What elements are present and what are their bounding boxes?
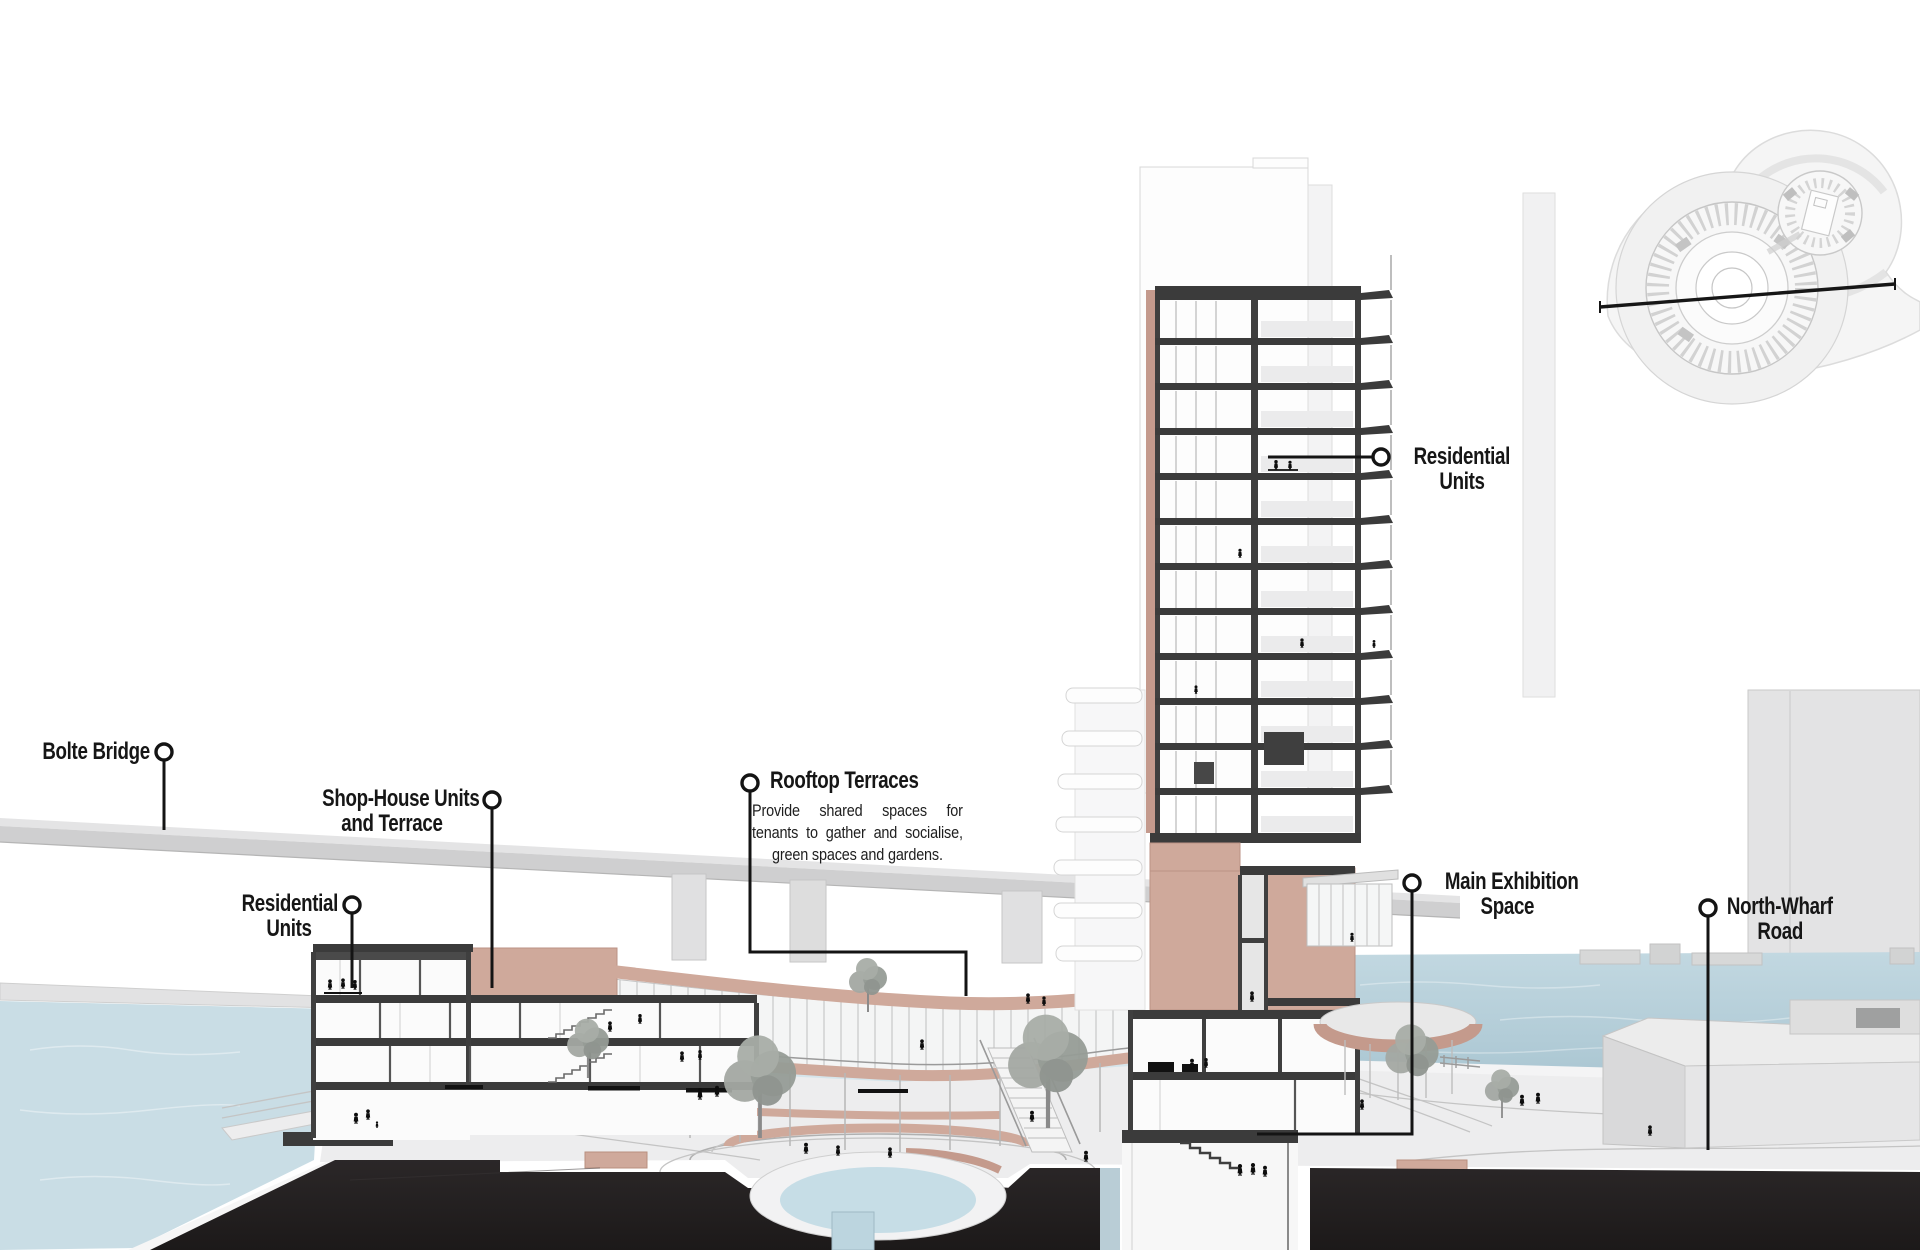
architectural-section-diagram: Bolte Bridge Shop-House Units and Terrac… [0, 0, 1920, 1250]
pool-channel [832, 1212, 874, 1250]
marker-rooftop-terraces [742, 775, 758, 791]
label-line1: North-Wharf [1727, 894, 1833, 919]
planter [585, 1152, 647, 1168]
roof-slab [313, 944, 473, 952]
label-residential-units-right: Residential Units [1396, 444, 1528, 494]
label-rooftop-terraces-title: Rooftop Terraces [770, 768, 990, 793]
exhibit-desk [1148, 1062, 1174, 1072]
label-text: Bolte Bridge [42, 739, 150, 764]
marker-main-exhibition [1404, 875, 1420, 891]
label-text: Rooftop Terraces [770, 768, 919, 793]
label-north-wharf-road: North-Wharf Road [1712, 894, 1848, 944]
label-line1: Residential [242, 891, 338, 916]
marker-residential-right [1373, 449, 1389, 465]
basement-exhibition [1122, 1130, 1298, 1250]
marker-shop-house [484, 792, 500, 808]
label-line2: Space [1480, 894, 1534, 919]
section-drawing [0, 0, 1920, 1250]
label-line1: Shop-House Units [322, 786, 479, 811]
water-channel [1100, 1168, 1120, 1250]
label-main-exhibition-space: Main Exhibition Space [1426, 869, 1588, 919]
label-residential-units-left: Residential Units [228, 891, 350, 941]
marker-bolte-bridge [156, 744, 172, 760]
label-bolte-bridge: Bolte Bridge [0, 739, 150, 764]
label-line2: and Terrace [341, 811, 442, 836]
dark-inset [1264, 732, 1304, 765]
label-rooftop-terraces-description: Provide shared spaces for tenants to gat… [752, 800, 963, 866]
label-line2: Road [1757, 919, 1803, 944]
pool-water [780, 1167, 976, 1233]
label-shop-house-units: Shop-House Units and Terrace [300, 786, 484, 836]
tower-side-wall [1146, 290, 1155, 833]
label-line2: Units [1439, 469, 1484, 494]
label-line2: Units [266, 916, 311, 941]
label-line1: Main Exhibition [1445, 869, 1579, 894]
label-line1: Residential [1414, 444, 1510, 469]
